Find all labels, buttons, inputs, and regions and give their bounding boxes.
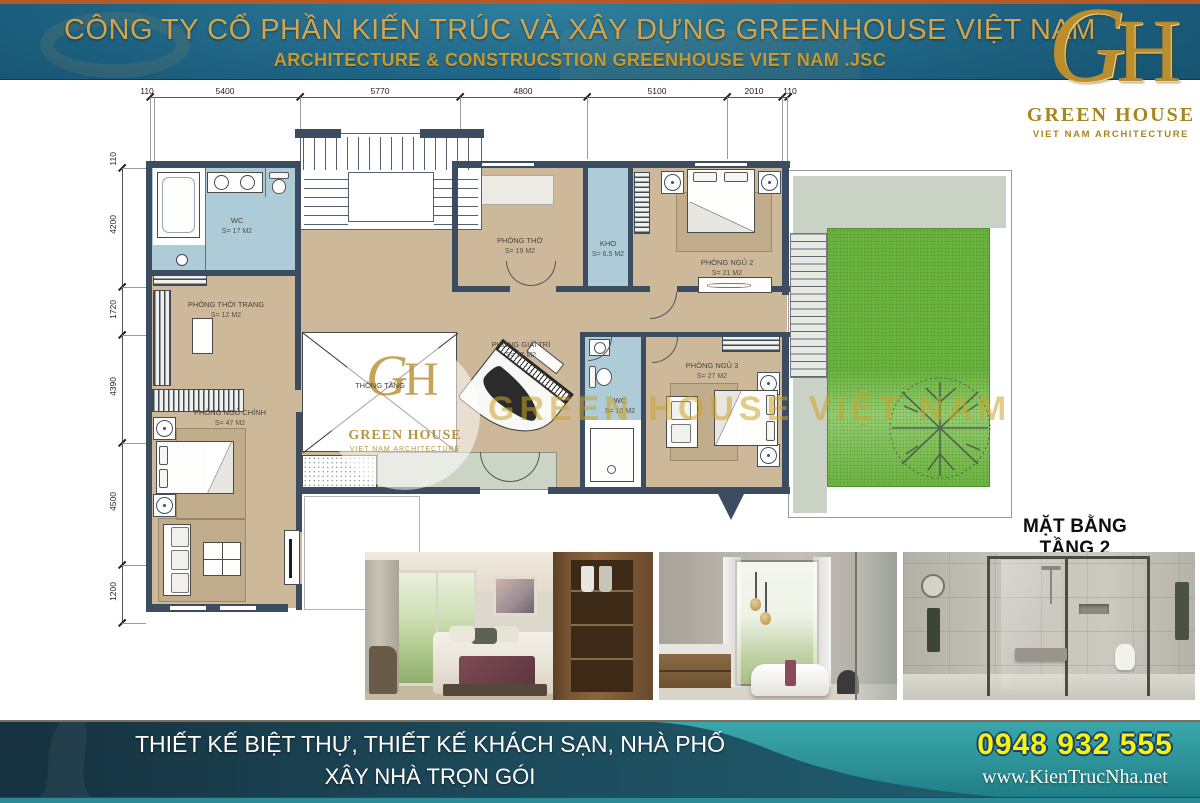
logo-tagline: VIET NAM ARCHITECTURE [1022,129,1200,140]
photo-bedroom [365,552,653,700]
section-marker [718,494,744,520]
dim-left-0: 110 [108,152,118,166]
toilet-bowl [596,368,612,386]
dim-left-5: 1200 [108,582,118,601]
nightstand-lamp [661,171,684,194]
room-label-giai-tri: PHÒNG GIẢI TRÍ S= 27 M2 [492,340,551,361]
window-slit [482,163,534,166]
toilet-tank [269,172,289,179]
room-label-wc17: WC S= 17 M2 [222,216,252,237]
footer-phone-number: 0948 932 555 [955,728,1195,762]
master-bed [156,441,234,494]
logo-name: GREEN HOUSE [1022,104,1200,127]
hanging-clothes [581,566,594,592]
company-subtitle: ARCHITECTURE & CONSTRUCSTION GREENHOUSE … [60,50,1100,71]
toilet-bowl [272,179,286,194]
dim-left-3: 4390 [108,377,118,396]
glass-partition [855,552,897,700]
wall-art [493,576,537,616]
dim-top-4: 5100 [648,86,667,96]
pillow [159,469,168,488]
photo-bathroom [659,552,897,700]
partition-line [205,167,206,270]
bathtub-inner [162,177,195,233]
dim-line-top [150,97,788,98]
terrace-steps [790,233,827,378]
shower-tub [590,428,634,482]
company-title: CÔNG TY CỔ PHẦN KIẾN TRÚC VÀ XÂY DỰNG GR… [60,14,1100,47]
coffee-table [203,542,241,576]
watermark-monogram-g: G [366,342,408,409]
wardrobe-interior [571,560,633,692]
dim-ext-line [587,97,588,159]
dim-top-6: 110 [783,86,797,96]
shelves [571,590,633,592]
towel-dark [927,608,940,652]
glass-frame [1065,556,1068,696]
wall [296,584,302,610]
poster-page: CÔNG TY CỔ PHẦN KIẾN TRÚC VÀ XÂY DỰNG GR… [0,0,1200,803]
room-label-ngu-3: PHÒNG NGỦ 3 S= 27 M2 [686,361,739,382]
dim-ext-line [300,97,301,131]
dim-ext-line [122,335,146,336]
nightstand-lamp [153,417,176,440]
shower-zone [585,420,641,488]
nightstand-lamp [757,444,780,467]
logo-monogram-h: H [1116,0,1181,103]
dim-ext-line [122,623,146,624]
wardrobe-hatch [722,335,780,352]
shower-drain [176,254,188,266]
vanity-cabinet [659,654,731,688]
shower-niche [1079,604,1109,614]
wardrobe [553,552,653,700]
dim-ext-line [150,97,151,163]
pendant-cord [765,582,767,612]
wall [583,161,588,292]
bed-bench [443,684,547,696]
dim-left-2: 1720 [108,300,118,319]
sofa [163,524,191,596]
toilet-tank [589,366,596,388]
dim-line-left [122,168,123,623]
greenhouse-logo: G H GREEN HOUSE VIET NAM ARCHITECTURE [1022,0,1200,148]
toilet [1115,644,1135,670]
altar-rug [478,175,554,205]
dim-top-0: 110 [140,86,154,96]
wardrobe-hatch [153,290,171,386]
wall [628,161,633,292]
glass-frame [987,556,990,696]
wall [296,412,302,532]
dim-ext-line [727,97,728,159]
towel-green [1175,582,1189,640]
dim-top-2: 5770 [371,86,390,96]
wall [295,129,341,138]
logo-monogram-g: G [1048,0,1126,108]
sofa-cushion [171,527,189,547]
watermark-monogram-h: H [404,352,439,407]
maroon-throw [459,656,535,686]
photo-shower [903,552,1195,700]
wall [782,161,789,295]
room-kho-floor [588,168,628,288]
dim-left-1: 4200 [108,215,118,234]
dim-top-1: 5400 [216,86,235,96]
watermark-logo-circle: G H GREEN HOUSE VIET NAM ARCHITECTURE [330,340,480,490]
bathtub [157,172,200,238]
drawer-line [659,670,731,672]
watermark-text: GREEN HOUSE VIỆT NAM [488,390,1011,429]
wall [548,487,790,494]
blanket-fold [688,202,754,232]
glass-header [987,556,1149,559]
dim-ext-line [782,97,783,167]
wall [146,604,288,612]
stair-landing [348,172,434,222]
glass-frame [1147,556,1150,696]
partition-line [265,167,266,197]
wall [146,161,301,168]
room-label-tho: PHÒNG THỜ S= 19 M2 [497,236,543,257]
footer-services-line2: XÂY NHÀ TRỌN GÓI [40,764,820,790]
wall [295,165,301,273]
pillow [693,172,717,182]
drain [607,465,616,474]
footer-website: www.KienTrucNha.net [955,766,1195,789]
shelf-hatch [634,172,650,234]
pillows [449,626,475,642]
dim-top-3: 4800 [514,86,533,96]
armchair [369,646,397,694]
pendant-cord [755,572,757,598]
sink-basin [240,175,255,190]
pillow [159,446,168,465]
tv-screen [289,539,292,578]
room-label-kho: KHO S= 6.5 M2 [592,239,624,260]
bed-2 [687,169,755,233]
pendant-light [750,598,761,611]
wall [146,270,301,276]
wall [452,286,510,292]
shower-bench [1015,648,1067,661]
window-slit [220,606,256,610]
dim-ext-line [122,443,146,444]
dim-left-4: 4500 [108,492,118,511]
towel-maroon [785,660,796,686]
blanket-fold [207,442,233,493]
vanity-counter [659,644,731,654]
nightstand-lamp [153,494,176,517]
watermark-logo-tagline: VIET NAM ARCHITECTURE [330,446,480,453]
glass-reflection [1001,560,1061,690]
nightstand-lamp [758,171,781,194]
footer-services-line1: THIẾT KẾ BIỆT THỰ, THIẾT KẾ KHÁCH SẠN, N… [40,731,820,758]
dim-ext-line [122,168,146,169]
stair-treads-left [304,172,348,225]
terrace-sage-top [793,176,1006,228]
wall [295,270,301,390]
wall [452,161,458,292]
room-label-ngu-2: PHÒNG NGỦ 2 S= 21 M2 [701,258,754,279]
dressing-table [192,318,213,354]
watermark-logo-name: GREEN HOUSE [330,428,480,444]
dim-ext-line [122,565,146,566]
dresser-bowl [707,283,751,288]
dresser [698,277,772,293]
shower-pipe [1050,570,1052,604]
window-slit [695,163,747,166]
dim-ext-line [154,97,155,163]
table-line [204,559,240,560]
footer-band: THIẾT KẾ BIỆT THỰ, THIẾT KẾ KHÁCH SẠN, N… [0,722,1200,797]
dim-top-5: 2010 [745,86,764,96]
sofa-cushion [171,573,189,593]
tv-cabinet [284,530,300,585]
room-label-thoi-trang: PHÒNG THỜI TRANG S= 12 M2 [188,300,264,321]
room-label-ngu-chinh: PHÒNG NGỦ CHÍNH S= 47 M2 [194,408,266,429]
pillow [724,172,748,182]
wall [146,161,152,612]
dim-ext-line [122,287,146,288]
footer-bottom-strip [0,797,1200,803]
sofa-cushion [171,550,189,570]
wall [556,286,650,292]
window-slit [170,606,206,610]
wall [420,129,484,138]
pendant-light [760,612,771,625]
dim-ext-line [787,97,788,167]
room-label-thong-tang: THÔNG TẦNG [355,381,405,392]
round-mirror [921,574,945,598]
sink-basin [214,175,229,190]
